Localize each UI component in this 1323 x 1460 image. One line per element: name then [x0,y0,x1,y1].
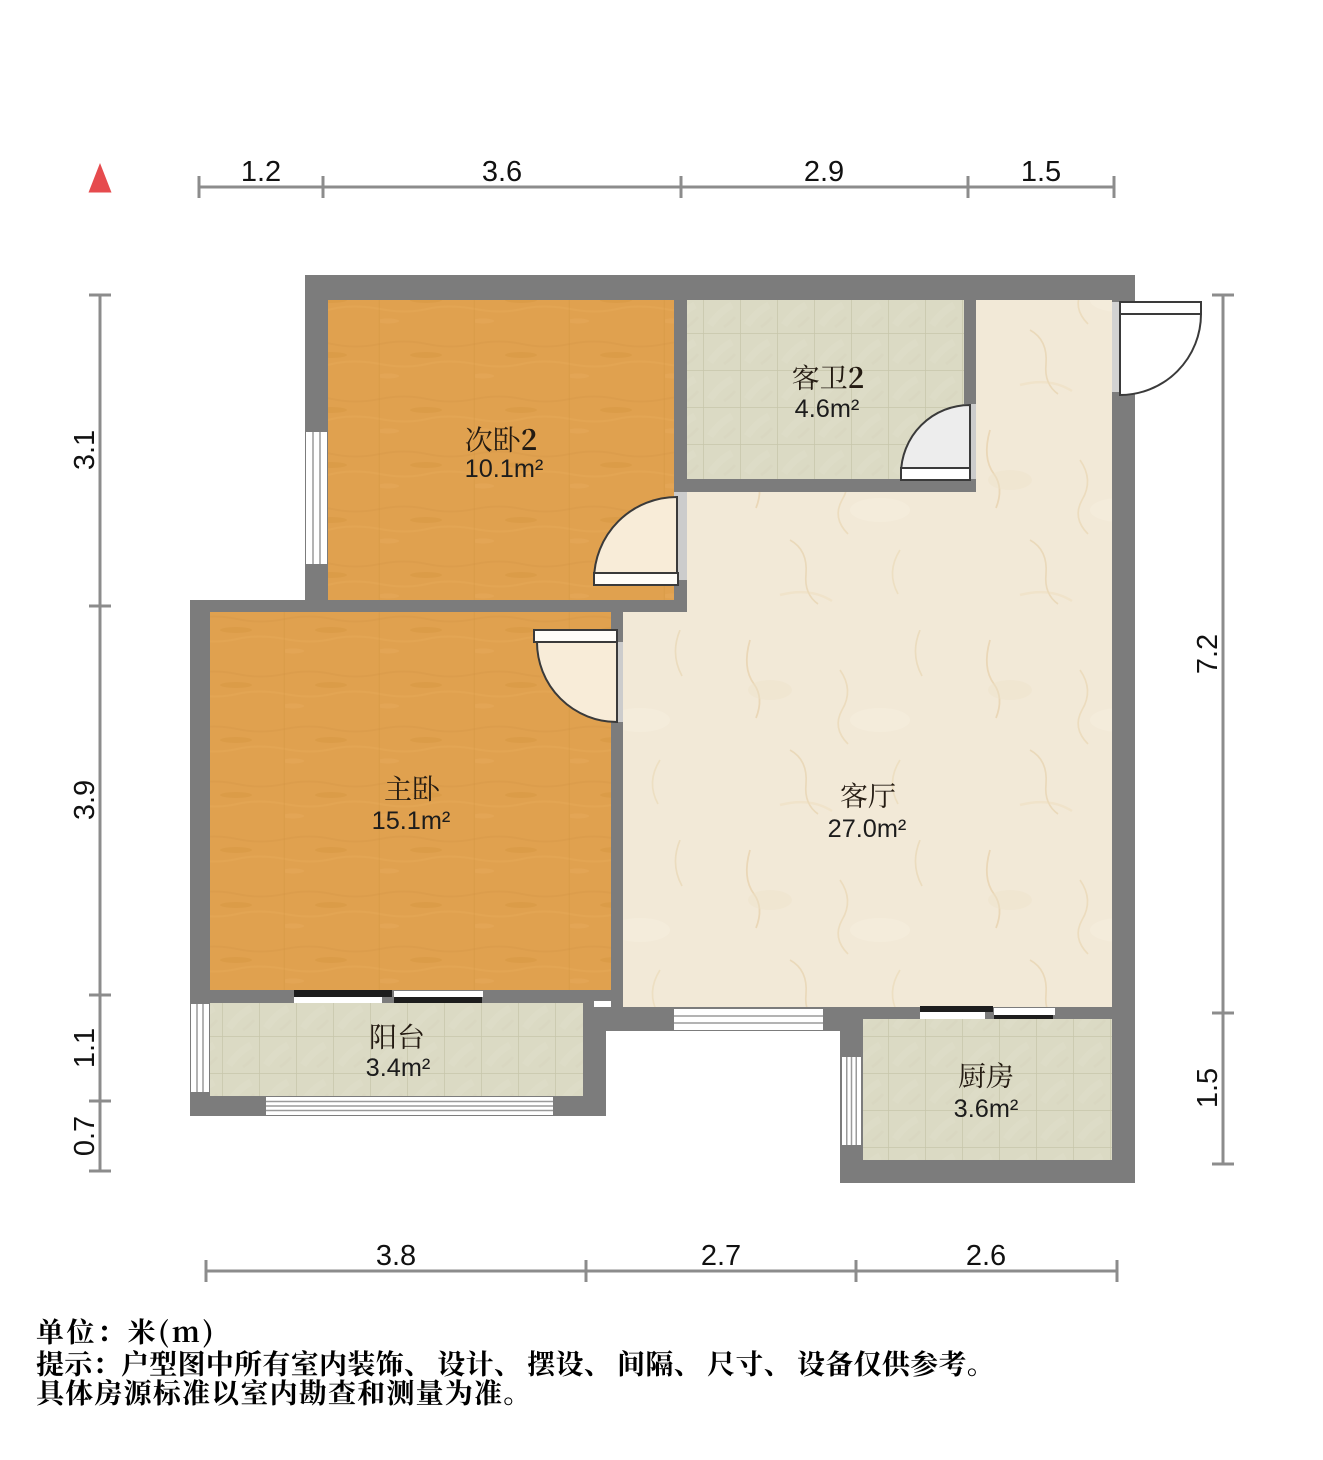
svg-text:10.1m²: 10.1m² [465,455,544,483]
svg-text:3.6: 3.6 [482,156,522,188]
svg-text:3.6m²: 3.6m² [954,1095,1019,1123]
svg-text:1.5: 1.5 [1021,156,1061,188]
svg-text:27.0m²: 27.0m² [828,815,907,843]
svg-text:15.1m²: 15.1m² [372,807,451,835]
svg-text:2.7: 2.7 [701,1240,741,1272]
svg-text:4.6m²: 4.6m² [795,395,860,423]
svg-text:2.6: 2.6 [966,1240,1006,1272]
svg-text:7.2: 7.2 [1192,634,1224,674]
svg-text:3.4m²: 3.4m² [366,1054,431,1082]
svg-text:1.5: 1.5 [1192,1068,1224,1108]
svg-text:3.9: 3.9 [69,780,101,820]
svg-text:1.2: 1.2 [241,156,281,188]
svg-text:1.1: 1.1 [69,1028,101,1068]
svg-text:3.1: 3.1 [69,430,101,470]
svg-text:2.9: 2.9 [804,156,844,188]
svg-text:3.8: 3.8 [376,1240,416,1272]
svg-text:0.7: 0.7 [69,1116,101,1156]
